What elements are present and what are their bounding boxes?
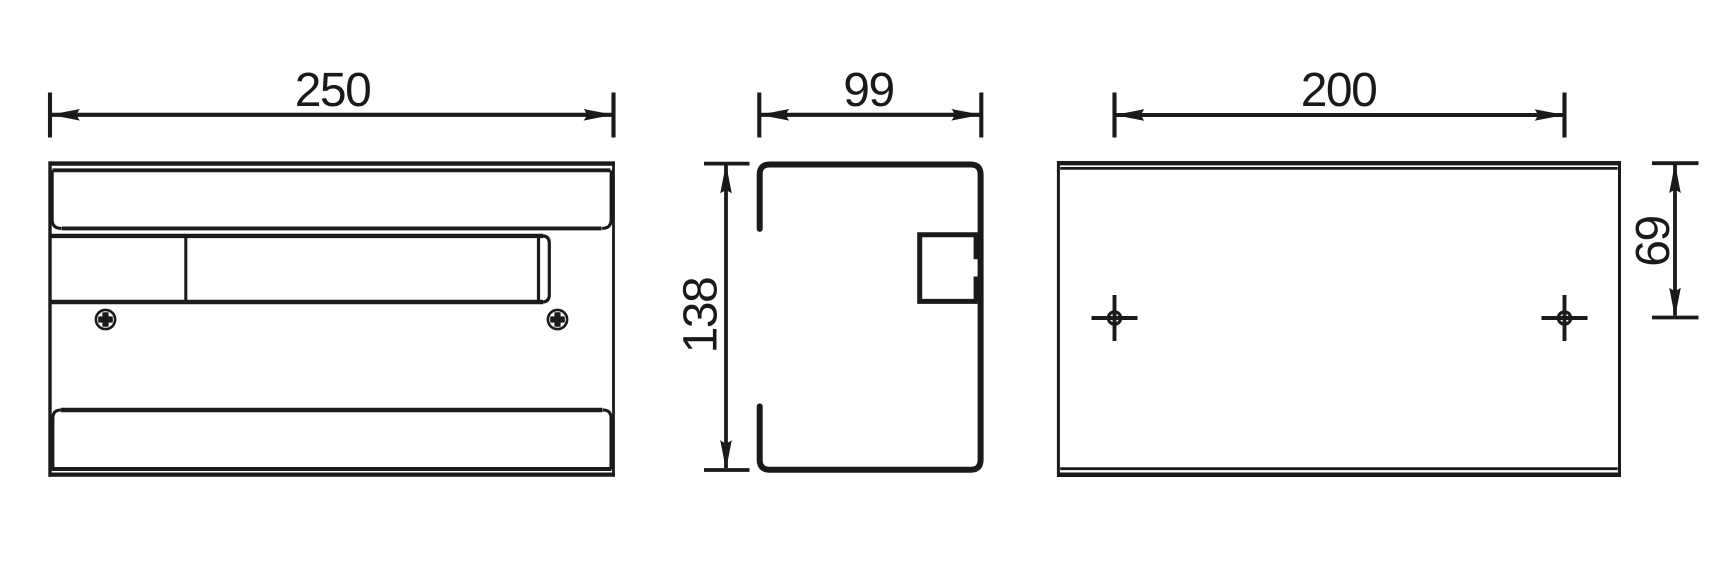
svg-text:138: 138 — [675, 278, 728, 354]
svg-text:250: 250 — [295, 64, 371, 117]
svg-text:99: 99 — [843, 64, 893, 117]
svg-text:200: 200 — [1301, 64, 1377, 117]
svg-text:69: 69 — [1627, 216, 1680, 266]
